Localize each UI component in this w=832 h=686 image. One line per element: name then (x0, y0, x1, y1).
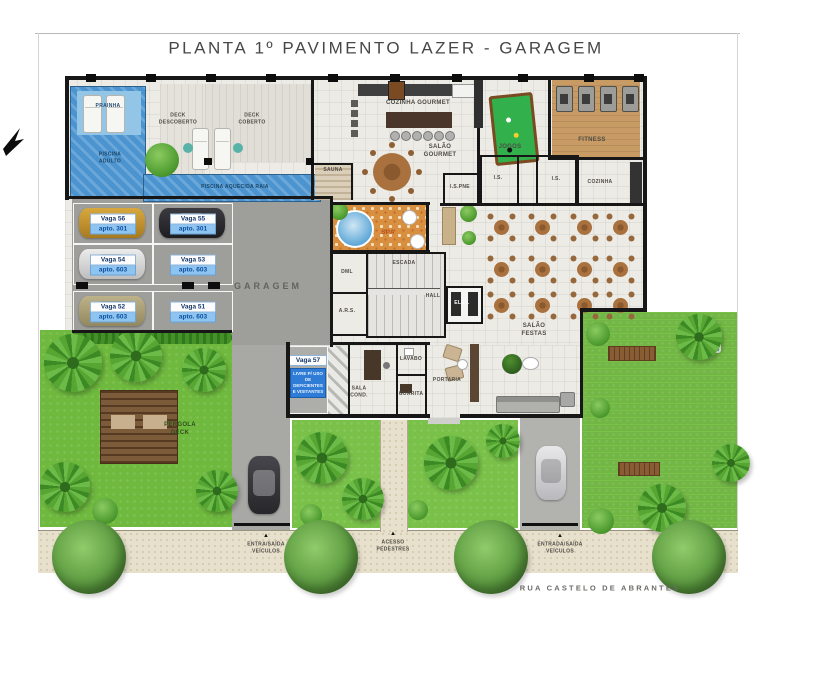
bar-stool (423, 131, 433, 141)
label-deck-descoberto: DECK DESCOBERTO (159, 113, 197, 126)
wall (440, 203, 645, 206)
column (584, 74, 594, 82)
garage-area (230, 198, 332, 345)
label-sala-cond: SALA COND. (350, 386, 368, 399)
label-deck-coberto: DECK COBERTO (238, 113, 265, 126)
party-table (494, 298, 509, 313)
equipment-seat (560, 94, 568, 104)
vaga-tag: Vaga 56 (90, 213, 136, 224)
party-table (613, 220, 628, 235)
wall (643, 76, 647, 312)
column (634, 74, 644, 82)
wall (313, 163, 353, 165)
entry-arrow-icon: ▲ (390, 531, 396, 537)
entry-step (428, 418, 460, 424)
sofa (496, 396, 560, 413)
car-on-ramp (248, 456, 280, 514)
label-salao-gourmet: SALÃO GOURMET (424, 144, 457, 160)
round-dining-table (373, 153, 411, 191)
parking-spot: Vaga 51apto. 603 (153, 291, 233, 332)
label-guarita: GUARITA (399, 391, 424, 398)
pool-lounger (83, 95, 102, 133)
street-tree (284, 520, 358, 594)
garden-bench (608, 346, 656, 361)
parking-spot: Vaga 55apto. 301 (153, 203, 233, 244)
floor-plan: PLANTA 1º PAVIMENTO LAZER - GARAGEM (0, 0, 832, 686)
car-on-driveway (536, 446, 566, 500)
wall (65, 196, 332, 199)
party-table (613, 262, 628, 277)
label-acesso-pedestres: ACESSO PEDESTRES (377, 540, 410, 553)
bar-stool (401, 131, 411, 141)
plan-right-border (737, 33, 738, 573)
wall (351, 163, 353, 200)
label-is-pne: I.S.PNE (450, 184, 470, 191)
column (390, 74, 400, 82)
wall (396, 345, 398, 415)
courtyard-bench (442, 207, 456, 245)
kitchen-counter (358, 84, 452, 96)
label-salao-festas: SALÃO FESTAS (521, 323, 546, 339)
column (452, 74, 462, 82)
label-sauna: SAUNA (323, 167, 342, 174)
wall (330, 196, 333, 347)
street-name: RUA CASTELO DE ABRANTES (520, 584, 680, 592)
bar-stool (434, 131, 444, 141)
wall (65, 76, 69, 200)
wall-seat (351, 100, 358, 107)
wall-seat (351, 120, 358, 127)
wall (548, 157, 645, 160)
deck-lounger (214, 128, 231, 170)
courtyard-plant (462, 231, 476, 245)
parking-spot: Vaga 53apto. 603 (153, 244, 233, 285)
label-piscina-raia: PISCINA AQUECIDA RAIA (201, 184, 269, 191)
label-lavabo: LAVABO (400, 356, 422, 363)
apto-tag: apto. 603 (90, 312, 136, 322)
gym-equipment (600, 86, 617, 112)
entry-arrow-icon: ▲ (263, 533, 269, 539)
wall (580, 308, 583, 418)
wall (348, 345, 350, 415)
wall (517, 155, 519, 205)
vaga-tag: Vaga 51 (170, 301, 216, 312)
column (206, 74, 216, 82)
garden-bench (618, 462, 660, 476)
label-hall: HALL (426, 293, 441, 300)
column (518, 74, 528, 82)
kitchen-island (386, 112, 452, 128)
gym-equipment (622, 86, 639, 112)
pergola-lounger (111, 415, 135, 429)
parking-spot: Vaga 52apto. 603 (73, 291, 153, 332)
label-ars: A.R.S. (339, 308, 356, 315)
equipment-seat (626, 94, 634, 104)
column (182, 282, 194, 289)
palm-tree (296, 432, 348, 484)
north-arrow-icon (0, 126, 26, 160)
wall (332, 202, 430, 205)
title-rule (35, 33, 740, 34)
wall (460, 414, 580, 418)
apto-tag: apto. 603 (170, 312, 216, 322)
label-escada: ESCADA (393, 260, 416, 267)
wall (311, 80, 314, 200)
courtyard-plant (460, 205, 477, 222)
palm-tree (424, 436, 478, 490)
palm-tree (40, 462, 90, 512)
stove (388, 81, 405, 100)
column (328, 74, 338, 82)
desk-chair (383, 362, 390, 369)
garden-bush (588, 508, 614, 534)
wall (286, 342, 290, 418)
side-table (183, 143, 193, 153)
billiard-ball (506, 117, 511, 122)
palm-tree (44, 334, 102, 392)
vaga57-spot: Vaga 57 LIVRE P/ USO DE DEFICIENTES E VI… (288, 346, 328, 414)
coffee-table (522, 357, 539, 370)
party-table (535, 298, 550, 313)
plan-left-border (38, 33, 39, 573)
wall (583, 308, 647, 312)
label-garagem: GARAGEM (234, 281, 302, 293)
wall (426, 202, 429, 252)
column (266, 74, 276, 82)
parking-spot: Vaga 56apto. 301 (73, 203, 153, 244)
gym-equipment (578, 86, 595, 112)
label-cozinha-gourmet: COZINHA GOURMET (386, 100, 450, 108)
entry-arrow-icon: ▲ (557, 533, 563, 539)
bar-stool (445, 131, 455, 141)
column (146, 74, 156, 82)
column (86, 74, 96, 82)
palm-tree (676, 314, 722, 360)
palm-tree (110, 330, 162, 382)
bar-stool (412, 131, 422, 141)
column (204, 158, 212, 165)
wall (330, 342, 430, 345)
party-table (494, 262, 509, 277)
label-jogos: JOGOS (499, 144, 522, 152)
bar-stool (390, 131, 400, 141)
vaga57-note: LIVRE P/ USO DE DEFICIENTES E VISITANTES (290, 368, 326, 398)
vaga-tag: Vaga 52 (90, 301, 136, 312)
pedestrian-path (380, 420, 408, 532)
vaga-tag: Vaga 55 (170, 213, 216, 224)
garden-bush (586, 322, 610, 346)
street-tree (52, 520, 126, 594)
label-is-a: I.S. (494, 175, 503, 182)
label-prainha: PRAINHA (96, 103, 121, 110)
condo-desk (364, 350, 381, 380)
armchair (560, 392, 575, 407)
pool-lounger (106, 95, 125, 133)
fridge (452, 84, 476, 98)
palm-tree (342, 478, 384, 520)
spa-table (410, 234, 425, 249)
wall (72, 330, 232, 333)
palm-tree (712, 444, 750, 482)
column (208, 282, 220, 289)
label-fitness: FITNESS (578, 137, 605, 145)
label-elev: ELEV. (454, 300, 470, 307)
planter-round (502, 354, 522, 374)
column (76, 282, 88, 289)
label-spa: SPA (381, 229, 395, 237)
party-table (535, 220, 550, 235)
garden-bush (590, 398, 610, 418)
apto-tag: apto. 301 (170, 224, 216, 234)
portaria-table (457, 359, 468, 370)
wall (443, 173, 478, 175)
spa-table (402, 210, 417, 225)
label-entrada-right: ENTRADA/SAÍDA VEÍCULOS (537, 542, 582, 555)
wall (575, 157, 577, 205)
apto-tag: apto. 301 (90, 224, 136, 234)
wall (290, 414, 430, 418)
party-table (577, 220, 592, 235)
page-title: PLANTA 1º PAVIMENTO LAZER - GARAGEM (168, 40, 603, 57)
gym-equipment (556, 86, 573, 112)
wall (396, 374, 425, 376)
label-piscina-adulto: PISCINA ADULTO (99, 152, 121, 165)
party-table (494, 220, 509, 235)
hatched-zone (327, 346, 349, 414)
wall-seat (351, 130, 358, 137)
palm-tree (486, 424, 520, 458)
party-table (535, 262, 550, 277)
apto-tag: apto. 603 (90, 265, 136, 275)
label-cozinha: COZINHA (588, 179, 613, 186)
vaga57-tag: Vaga 57 (289, 355, 327, 366)
wood-partition (470, 344, 479, 402)
service-counter (630, 162, 642, 204)
equipment-seat (582, 94, 590, 104)
wall (577, 155, 579, 205)
label-pergola: PÉRGOLA DECK (164, 422, 196, 438)
parking-spot: Vaga 54apto. 603 (73, 244, 153, 285)
vehicle-gate (234, 523, 290, 526)
wall (443, 173, 445, 203)
equipment-seat (604, 94, 612, 104)
street-tree (454, 520, 528, 594)
label-is-b: I.S. (552, 176, 561, 183)
wall-seat (351, 110, 358, 117)
palm-tree (182, 348, 226, 392)
garden-bush (408, 500, 428, 520)
wall (480, 155, 482, 205)
label-entrada-left: ENTRA/SAÍDA VEÍCULOS (247, 542, 284, 555)
vehicle-gate (522, 523, 578, 526)
apto-tag: apto. 603 (170, 265, 216, 275)
wall (536, 155, 538, 205)
label-dml: DML (341, 269, 353, 276)
poolside-plant (145, 143, 179, 177)
side-table (233, 143, 243, 153)
wall (332, 250, 430, 253)
vaga-tag: Vaga 53 (170, 254, 216, 265)
wall (474, 80, 483, 128)
party-table (577, 262, 592, 277)
column (306, 158, 314, 165)
palm-tree (196, 470, 238, 512)
wall (548, 78, 551, 158)
label-portaria: PORTARIA (433, 377, 461, 384)
wall (425, 345, 427, 415)
vaga-tag: Vaga 54 (90, 254, 136, 265)
